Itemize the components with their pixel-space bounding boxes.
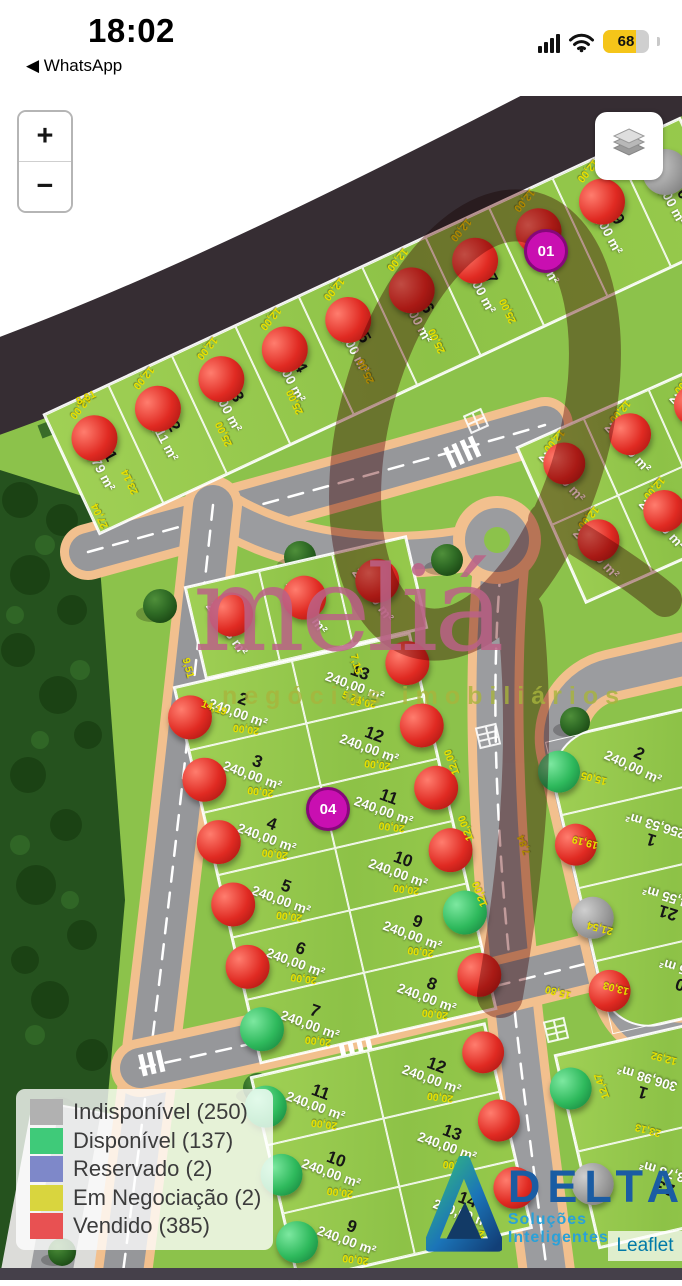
lot-marker-disponivel[interactable] bbox=[534, 747, 584, 797]
delta-name: DELTA bbox=[508, 1164, 682, 1209]
legend-label: Vendido (385) bbox=[73, 1213, 210, 1239]
lot-map: 1244,79 m²12,002300,11 m²12,003300,00 m²… bbox=[0, 0, 682, 1280]
block-quadra-right-top: 1240,00 m²12,002240,00 m²12,003240,00 m²… bbox=[518, 361, 682, 602]
legend-label: Em Negociação (2) bbox=[73, 1185, 261, 1211]
legend-swatch bbox=[30, 1156, 63, 1182]
lot-marker-disponivel[interactable] bbox=[546, 1064, 596, 1114]
clock: 18:02 bbox=[88, 12, 175, 50]
zoom-out-button[interactable]: − bbox=[19, 162, 71, 211]
battery-cap bbox=[657, 37, 660, 46]
legend-item: Indisponível (250) bbox=[30, 1098, 263, 1127]
legend-swatch bbox=[30, 1128, 63, 1154]
legend-swatch bbox=[30, 1185, 63, 1211]
legend-label: Disponível (137) bbox=[73, 1128, 233, 1154]
lot-label: 10240,00 m² bbox=[299, 1141, 367, 1191]
wifi-icon bbox=[568, 33, 595, 53]
legend-item: Reservado (2) bbox=[30, 1155, 263, 1184]
legend-label: Indisponível (250) bbox=[73, 1099, 248, 1125]
dimension-label: 20,00 bbox=[426, 1090, 454, 1105]
quadra-badge-01[interactable]: 01 bbox=[524, 229, 568, 273]
lot-marker-vendido[interactable] bbox=[192, 815, 245, 868]
lot-label: 20256,15 m² bbox=[653, 955, 682, 1003]
zoom-control: + − bbox=[17, 110, 73, 213]
delta-triangle-icon bbox=[426, 1156, 502, 1252]
dimension-label: 20,00 bbox=[304, 1033, 332, 1048]
legend-item: Disponível (137) bbox=[30, 1127, 263, 1156]
dimension-label: 20,00 bbox=[421, 1006, 449, 1021]
lot-label: 9240,00 m² bbox=[315, 1208, 383, 1258]
lot-marker-vendido[interactable] bbox=[221, 940, 274, 993]
dimension-label: 20,00 bbox=[232, 722, 260, 737]
lot-label: 11240,00 m² bbox=[284, 1073, 352, 1123]
legend-swatch bbox=[30, 1213, 63, 1239]
dimension-label: 15,80 bbox=[544, 983, 572, 1001]
dimension-label: 20,00 bbox=[392, 882, 420, 897]
back-to-whatsapp-link[interactable]: ◀ WhatsApp bbox=[26, 56, 122, 76]
lot-marker-vendido[interactable] bbox=[206, 878, 259, 931]
dimension-label: 7,84 bbox=[515, 833, 533, 856]
status-legend: Indisponível (250)Disponível (137)Reserv… bbox=[16, 1089, 273, 1250]
lot-label: 2240,00 m² bbox=[602, 732, 671, 786]
dimension-label: 20,00 bbox=[247, 784, 275, 799]
lot-label: 1306,98 m² bbox=[611, 1062, 679, 1110]
dimension-label: 20,00 bbox=[275, 909, 303, 924]
dimension-label: 20,00 bbox=[378, 819, 406, 834]
dimension-label: 20,00 bbox=[290, 971, 318, 986]
dimension-label: 20,00 bbox=[341, 1252, 369, 1267]
cellular-signal-icon bbox=[538, 33, 560, 53]
lot-label: 1256,53 m² bbox=[619, 809, 682, 857]
layers-icon bbox=[608, 127, 650, 165]
layers-button[interactable] bbox=[595, 112, 663, 180]
status-bar: 18:02 ◀ WhatsApp 68 bbox=[0, 0, 682, 96]
lot-marker-disponivel[interactable] bbox=[272, 1217, 322, 1267]
battery-percent: 68 bbox=[603, 30, 649, 53]
lot-label: 21254,55 m² bbox=[636, 882, 682, 930]
quadra-badge-04[interactable]: 04 bbox=[306, 787, 350, 831]
block-quadra-mid: 2240,00 m²20,0013240,00 m²20,003240,00 m… bbox=[175, 634, 495, 1062]
legend-label: Reservado (2) bbox=[73, 1156, 212, 1182]
zoom-in-button[interactable]: + bbox=[19, 112, 71, 162]
status-icons: 68 bbox=[538, 30, 660, 53]
dimension-label: 20,00 bbox=[364, 757, 392, 772]
legend-item: Vendido (385) bbox=[30, 1212, 263, 1241]
lot-marker-vendido[interactable] bbox=[178, 753, 231, 806]
dimension-label: 20,00 bbox=[310, 1117, 338, 1132]
map-bottom-edge bbox=[0, 1268, 682, 1280]
lot-label: 12240,00 m² bbox=[399, 1046, 467, 1096]
dimension-label: 20,00 bbox=[326, 1184, 354, 1199]
dimension-label: 20,00 bbox=[261, 846, 289, 861]
battery-icon: 68 bbox=[603, 30, 649, 53]
dimension-label: 20,00 bbox=[407, 944, 435, 959]
dimension-label: 9,51 bbox=[180, 657, 197, 680]
leaflet-link[interactable]: Leaflet bbox=[616, 1235, 673, 1257]
leaflet-attribution: Leaflet bbox=[608, 1231, 682, 1261]
legend-item: Em Negociação (2) bbox=[30, 1184, 263, 1213]
legend-swatch bbox=[30, 1099, 63, 1125]
lot-marker-disponivel[interactable] bbox=[235, 1003, 288, 1056]
